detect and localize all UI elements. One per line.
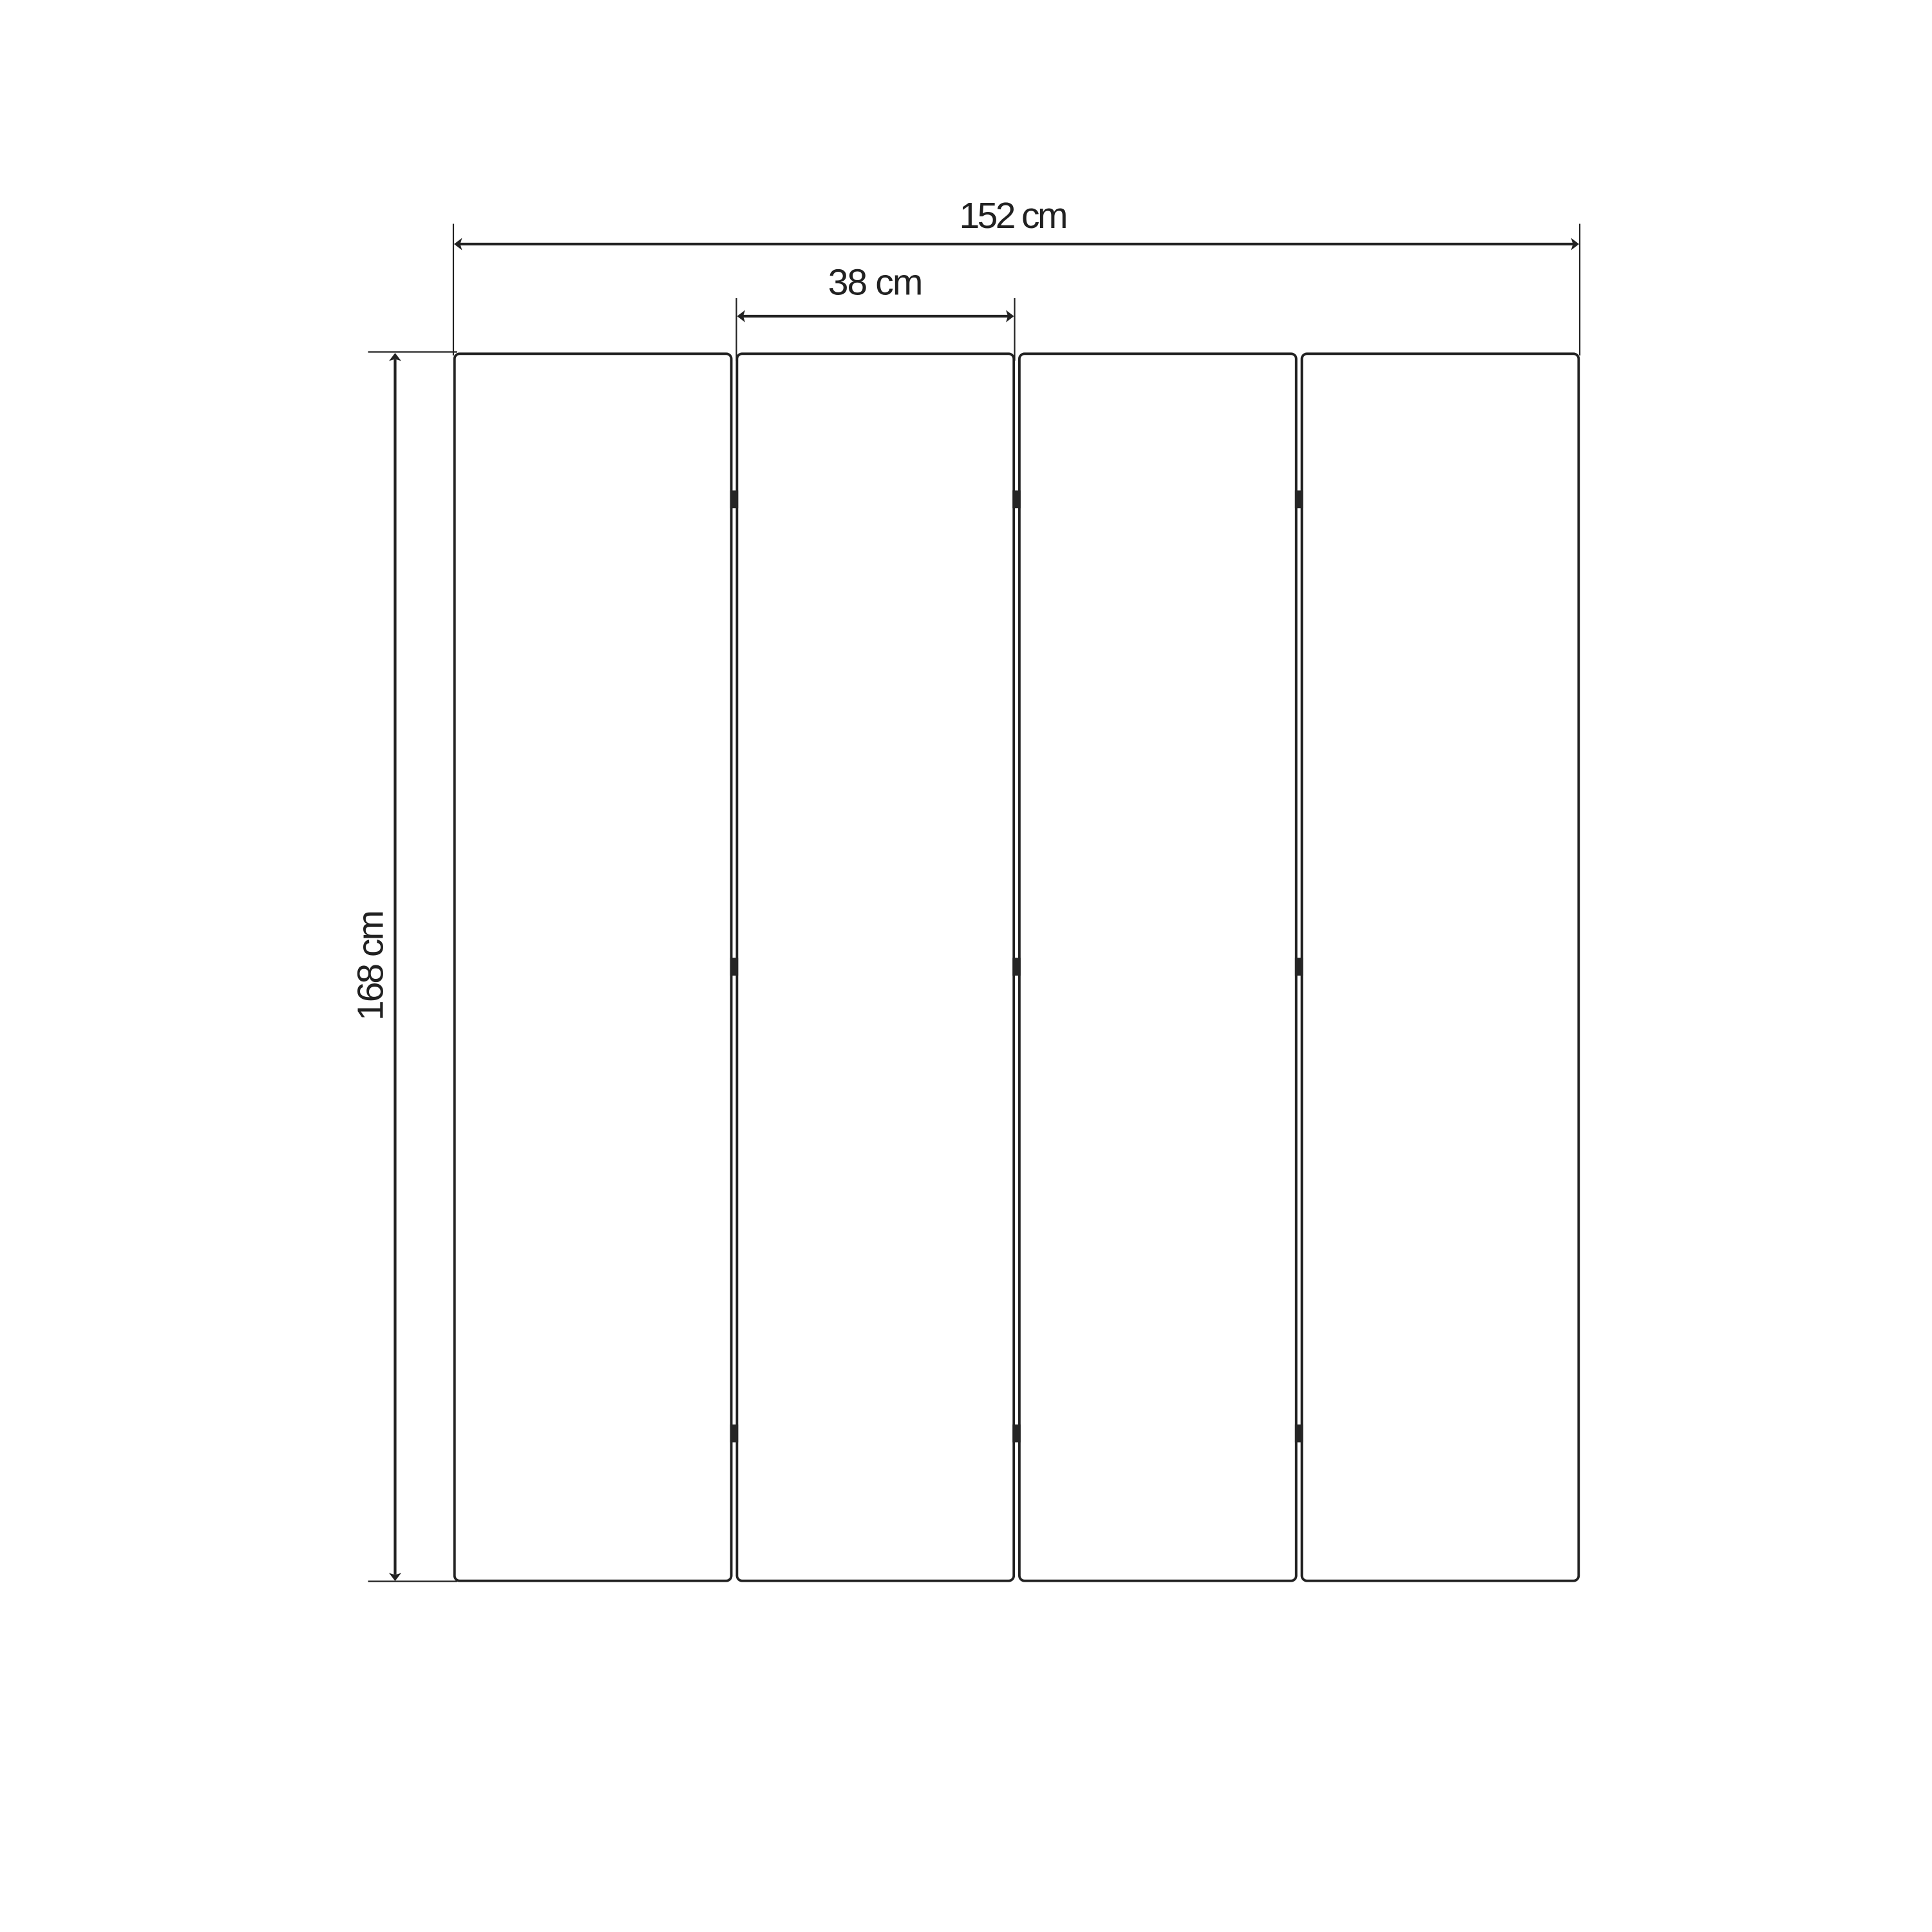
svg-text:38 cm: 38 cm (828, 262, 922, 303)
svg-text:168 cm: 168 cm (350, 912, 392, 1021)
svg-text:152 cm: 152 cm (960, 195, 1066, 236)
